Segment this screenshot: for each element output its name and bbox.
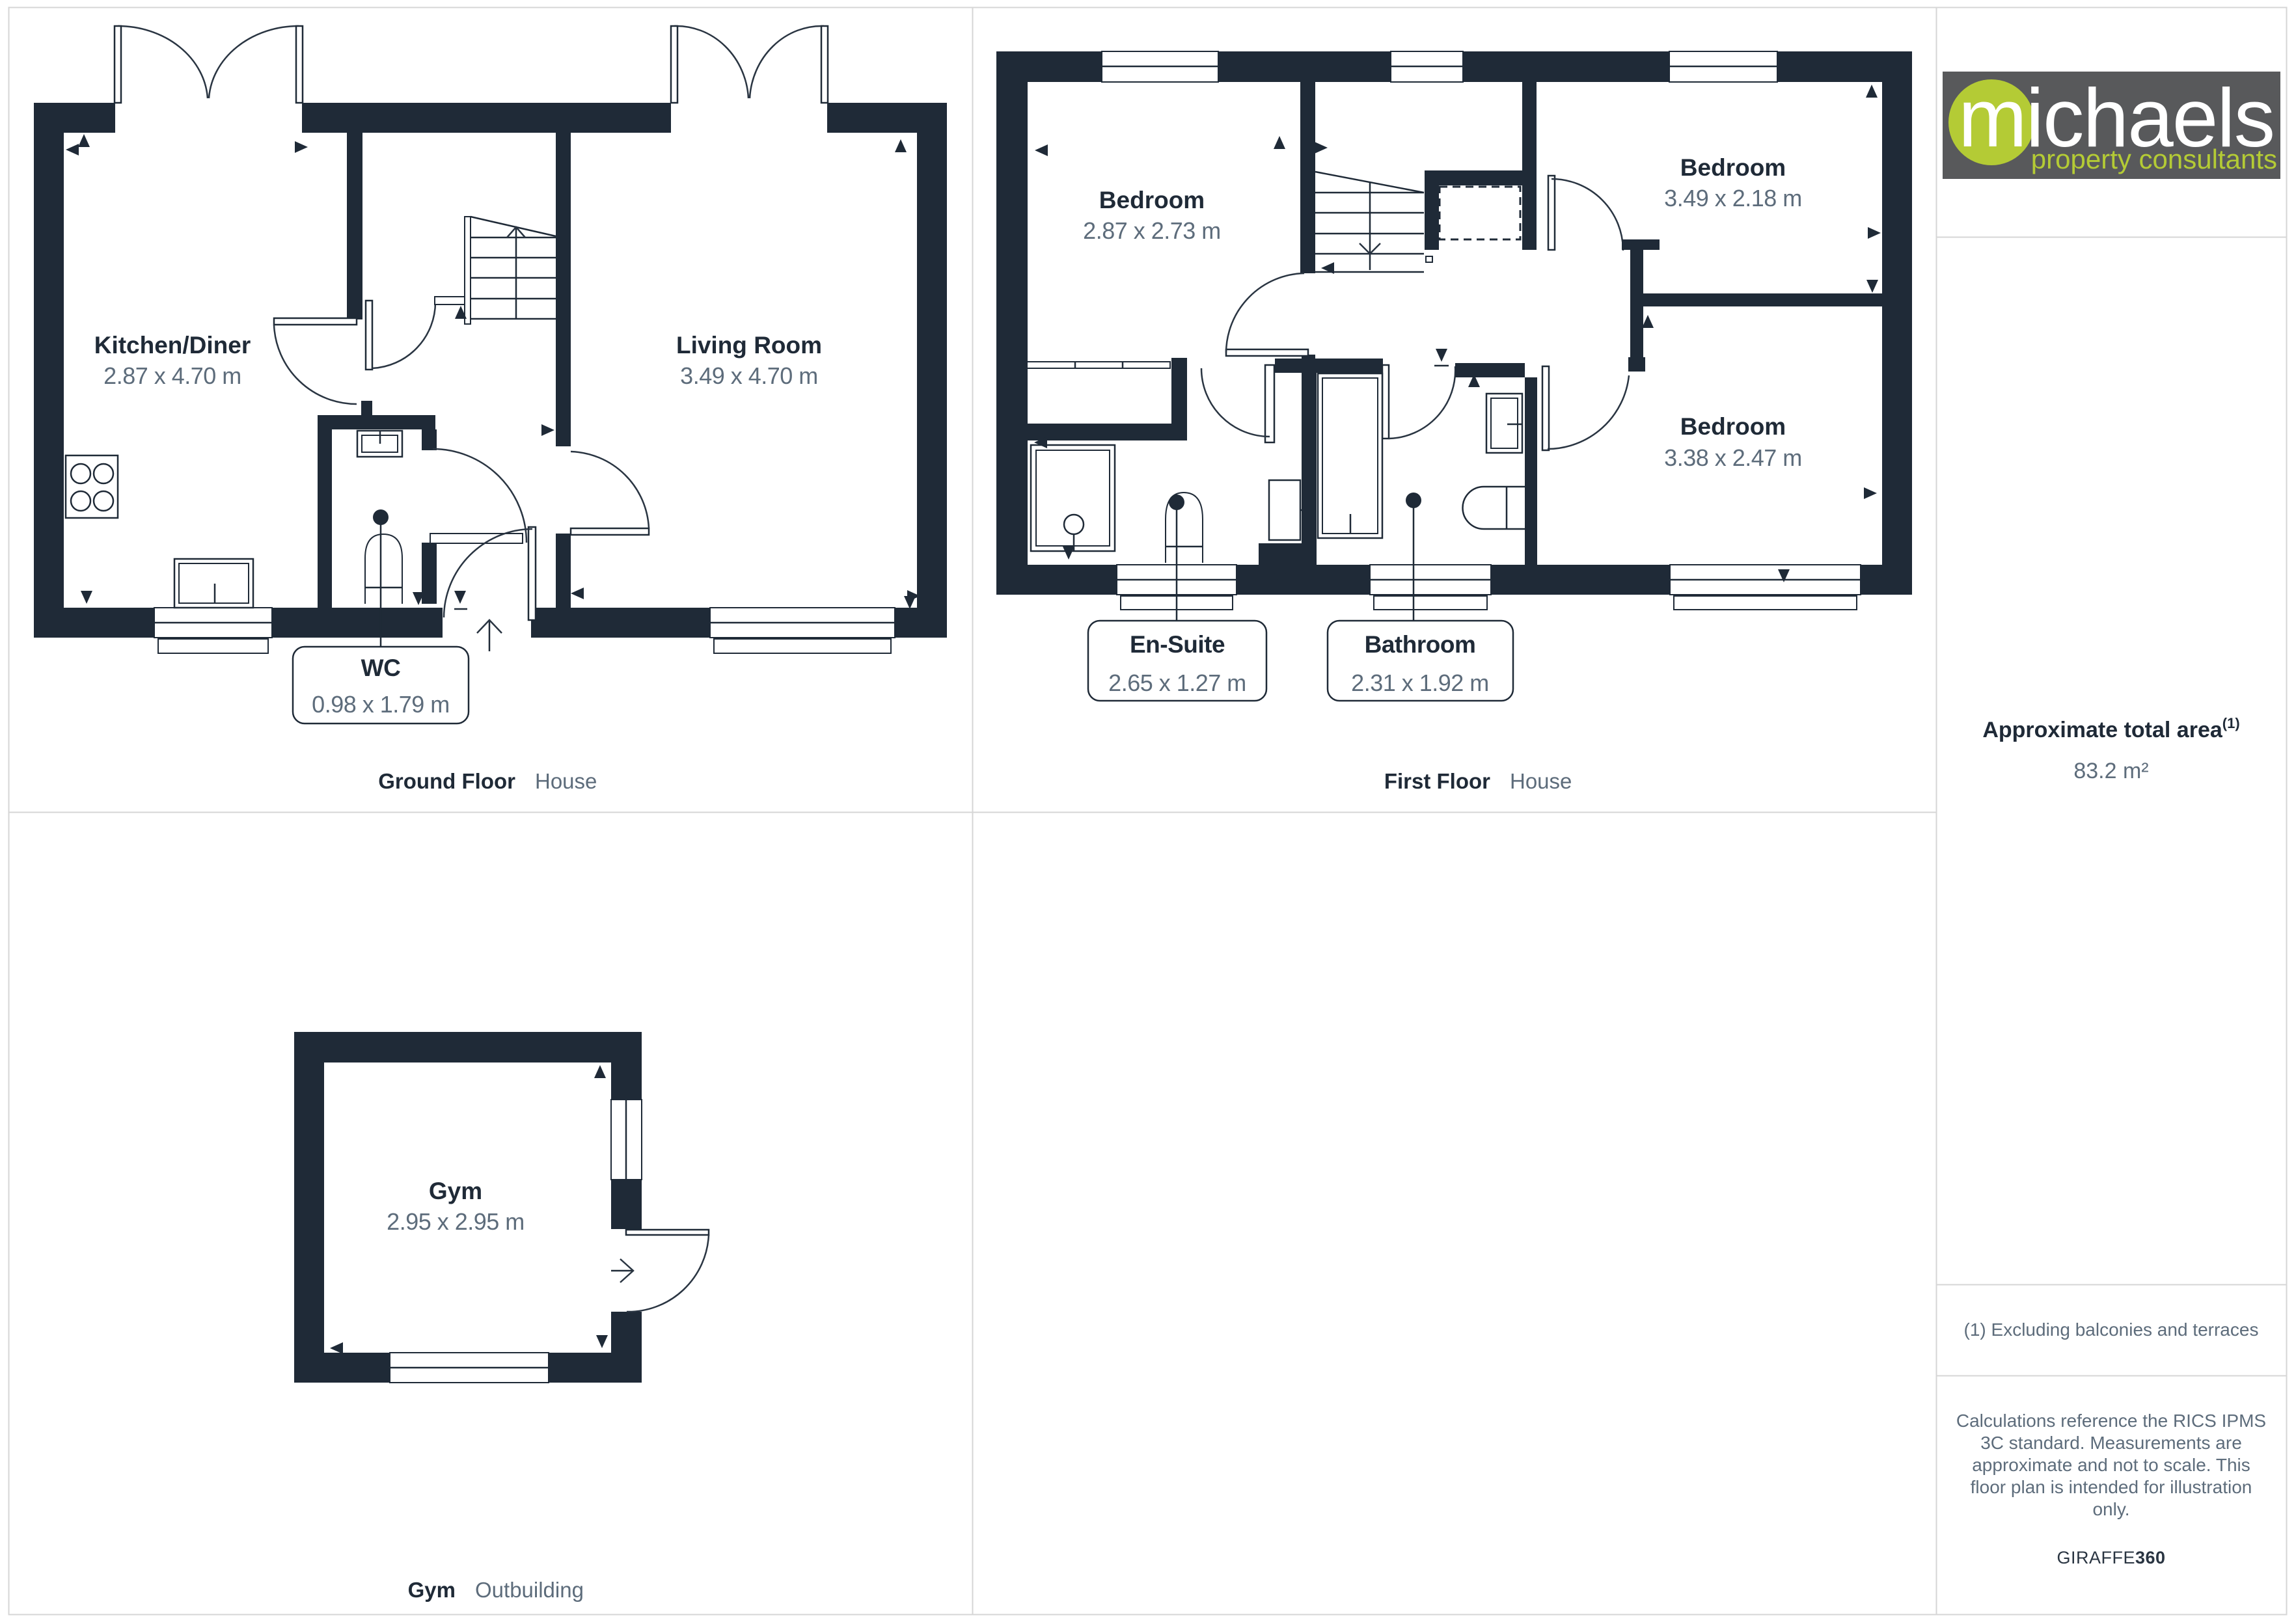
svg-text:approximate and not to scale.: approximate and not to scale. This bbox=[1972, 1455, 2250, 1475]
svg-text:Bathroom: Bathroom bbox=[1365, 631, 1476, 658]
svg-text:3.49 x 2.18 m: 3.49 x 2.18 m bbox=[1664, 185, 1802, 211]
svg-text:Gym: Gym bbox=[408, 1578, 456, 1602]
svg-text:First Floor: First Floor bbox=[1384, 769, 1490, 793]
svg-text:2.87 x 4.70 m: 2.87 x 4.70 m bbox=[103, 362, 241, 389]
svg-text:House: House bbox=[535, 769, 597, 793]
svg-text:Living Room: Living Room bbox=[676, 332, 822, 359]
svg-text:3.38 x 2.47 m: 3.38 x 2.47 m bbox=[1664, 444, 1802, 471]
svg-text:En-Suite: En-Suite bbox=[1130, 631, 1225, 658]
svg-text:0.98 x 1.79 m: 0.98 x 1.79 m bbox=[312, 691, 450, 718]
svg-text:Bedroom: Bedroom bbox=[1099, 187, 1205, 213]
svg-text:House: House bbox=[1510, 769, 1572, 793]
svg-text:83.2 m²: 83.2 m² bbox=[2073, 759, 2148, 783]
svg-text:3.49 x 4.70 m: 3.49 x 4.70 m bbox=[680, 362, 818, 389]
svg-text:GIRAFFE360: GIRAFFE360 bbox=[2057, 1548, 2165, 1567]
svg-text:2.95 x 2.95 m: 2.95 x 2.95 m bbox=[387, 1208, 525, 1235]
svg-text:(1) Excluding balconies and te: (1) Excluding balconies and terraces bbox=[1964, 1319, 2259, 1340]
svg-text:Calculations reference the RIC: Calculations reference the RICS IPMS bbox=[1956, 1411, 2266, 1431]
svg-text:WC: WC bbox=[361, 655, 401, 681]
svg-text:Approximate total area(1): Approximate total area(1) bbox=[1982, 715, 2239, 742]
svg-text:only.: only. bbox=[2092, 1499, 2129, 1519]
svg-text:Outbuilding: Outbuilding bbox=[475, 1578, 584, 1602]
svg-text:2.31 x 1.92 m: 2.31 x 1.92 m bbox=[1351, 670, 1489, 696]
svg-text:3C standard. Measurements are: 3C standard. Measurements are bbox=[1980, 1433, 2242, 1453]
svg-text:2.65 x 1.27 m: 2.65 x 1.27 m bbox=[1108, 670, 1246, 696]
svg-text:Kitchen/Diner: Kitchen/Diner bbox=[94, 332, 251, 359]
svg-text:Gym: Gym bbox=[429, 1178, 482, 1204]
svg-text:Bedroom: Bedroom bbox=[1680, 154, 1786, 181]
svg-text:Ground Floor: Ground Floor bbox=[378, 769, 515, 793]
svg-text:2.87 x 2.73 m: 2.87 x 2.73 m bbox=[1083, 217, 1221, 244]
svg-text:property consultants: property consultants bbox=[2031, 144, 2277, 174]
svg-text:floor plan is intended for ill: floor plan is intended for illustration bbox=[1971, 1477, 2252, 1497]
svg-text:Bedroom: Bedroom bbox=[1680, 413, 1786, 440]
